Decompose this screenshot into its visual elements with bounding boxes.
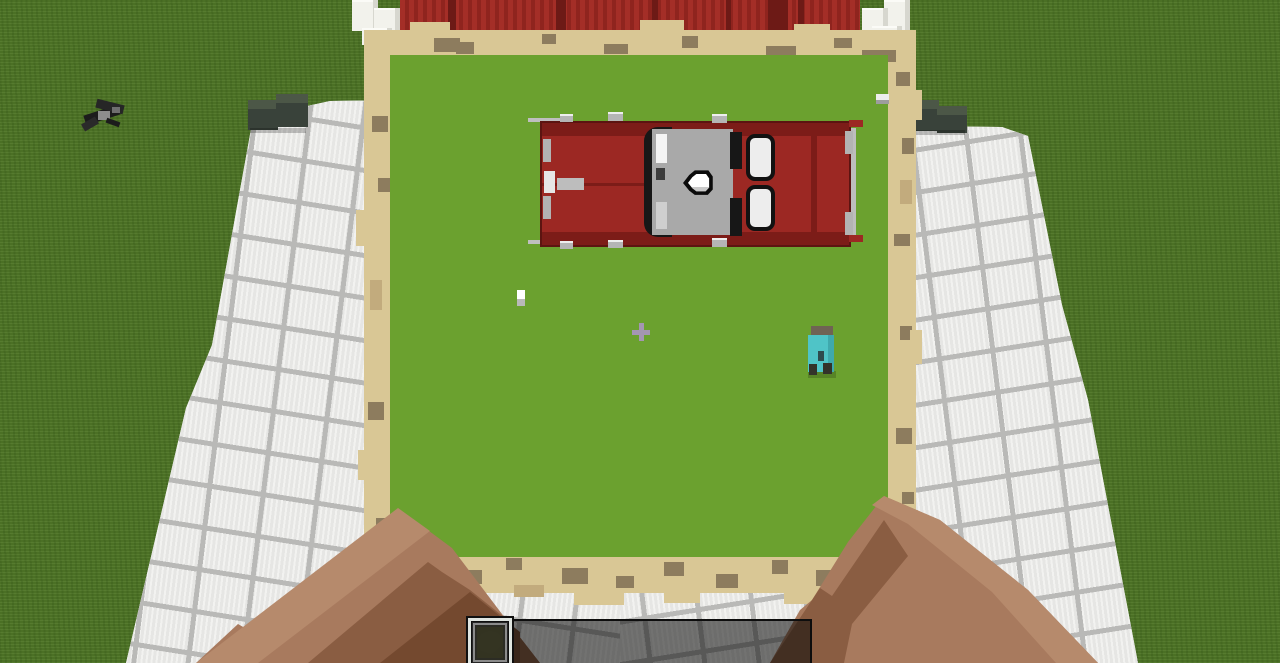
hotbar (469, 619, 812, 663)
map-border-jag (410, 22, 450, 32)
map-border-jag (902, 138, 914, 154)
car-left-cap (543, 139, 551, 162)
hedge-left (248, 94, 310, 134)
map-border-jag (372, 116, 388, 132)
map-border-jag (514, 585, 544, 597)
minecraft-screen (0, 0, 1280, 663)
map-border-jag (682, 36, 698, 48)
map-border-jag (772, 560, 788, 574)
map-border-jag (834, 38, 852, 48)
map-border-jag (370, 280, 382, 310)
held-map-item[interactable] (364, 30, 916, 593)
cyan-banner-marker (806, 323, 836, 381)
map-border-jag (664, 591, 700, 603)
car-mirror (560, 114, 573, 122)
map-border-jag (900, 180, 912, 204)
car-cabin-bar (730, 198, 742, 236)
map-border-jag (716, 574, 738, 588)
car-cabin-bar (730, 132, 742, 169)
map-border-jag (604, 44, 628, 54)
car-windshield (656, 202, 667, 229)
car-seat (746, 134, 775, 181)
car-mirror (560, 241, 573, 249)
map-border-jag (910, 330, 922, 364)
hotbar-slot-9[interactable] (472, 622, 508, 663)
car-left-cap (543, 196, 551, 219)
white-block-marker (876, 94, 889, 104)
bat-entity (76, 96, 128, 136)
car-mirror (712, 114, 727, 123)
map-border-jag (902, 492, 914, 504)
car-seat (746, 185, 775, 231)
crosshair-icon (632, 323, 650, 341)
map-border-jag (356, 210, 366, 246)
car-hood-line (811, 125, 817, 243)
car-right-line (849, 235, 863, 242)
car-right-line (849, 120, 863, 127)
map-border-jag (616, 576, 634, 588)
map-border-jag (434, 38, 460, 52)
car-mirror (608, 240, 623, 248)
white-dot-marker (517, 290, 525, 306)
map-border-jag (896, 428, 912, 444)
map-border-jag (896, 72, 910, 86)
car-mirror (712, 238, 727, 247)
car-left-handle (544, 171, 555, 193)
map-border-jag (574, 593, 624, 605)
car-windshield (656, 134, 667, 163)
map-border-jag (562, 568, 588, 584)
map-border-jag (894, 234, 910, 246)
map-border-jag (542, 34, 556, 44)
map-border-jag (912, 90, 922, 120)
car-right-cap (845, 212, 853, 235)
map-border-jag (368, 402, 384, 420)
map-border-jag (640, 20, 684, 32)
map-border-jag (664, 562, 684, 576)
car-mirror (608, 112, 623, 121)
map-border-jag (378, 178, 390, 192)
car-cabin-nub (656, 168, 665, 180)
car-gray-bar (557, 178, 584, 190)
map-border-jag (358, 450, 366, 480)
map-border-jag (506, 558, 522, 570)
car-right-cap (845, 131, 853, 154)
map-border-jag (794, 24, 830, 32)
